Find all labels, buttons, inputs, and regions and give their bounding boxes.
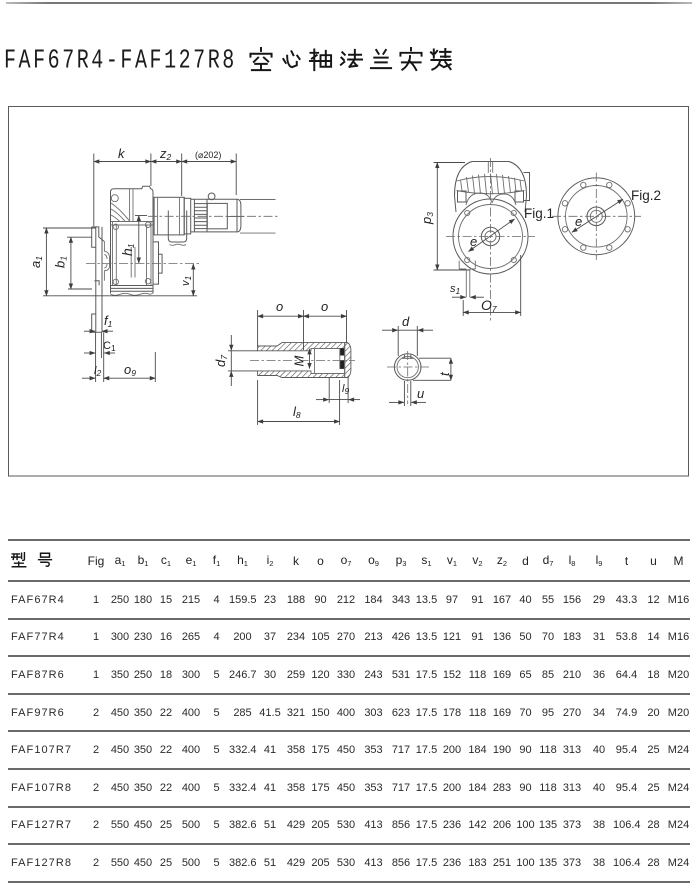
- svg-text:O7: O7: [481, 297, 497, 314]
- svg-text:v1: v1: [180, 276, 193, 287]
- svg-text:l8: l8: [293, 404, 301, 420]
- svg-text:e: e: [575, 214, 582, 229]
- svg-text:p3: p3: [419, 212, 435, 225]
- svg-text:o: o: [276, 299, 283, 314]
- svg-text:M: M: [292, 356, 307, 367]
- svg-text:b1: b1: [53, 256, 69, 268]
- svg-text:d7: d7: [213, 355, 229, 367]
- svg-text:o9: o9: [124, 362, 136, 378]
- svg-text:u: u: [417, 386, 424, 401]
- svg-text:d: d: [402, 314, 410, 329]
- svg-text:o: o: [321, 299, 328, 314]
- svg-text:Fig.1: Fig.1: [524, 206, 554, 221]
- svg-text:z2: z2: [159, 146, 172, 162]
- svg-text:(⌀202): (⌀202): [195, 150, 221, 160]
- svg-text:l2: l2: [94, 365, 101, 378]
- svg-text:e: e: [470, 234, 477, 249]
- svg-text:h1: h1: [119, 243, 136, 256]
- svg-text:t: t: [437, 371, 452, 376]
- svg-text:Fig.2: Fig.2: [631, 188, 661, 203]
- svg-text:a1: a1: [28, 256, 44, 268]
- svg-text:s1: s1: [450, 283, 461, 296]
- svg-text:k: k: [118, 146, 126, 161]
- svg-text:f1: f1: [104, 313, 113, 329]
- svg-text:C1: C1: [103, 340, 116, 353]
